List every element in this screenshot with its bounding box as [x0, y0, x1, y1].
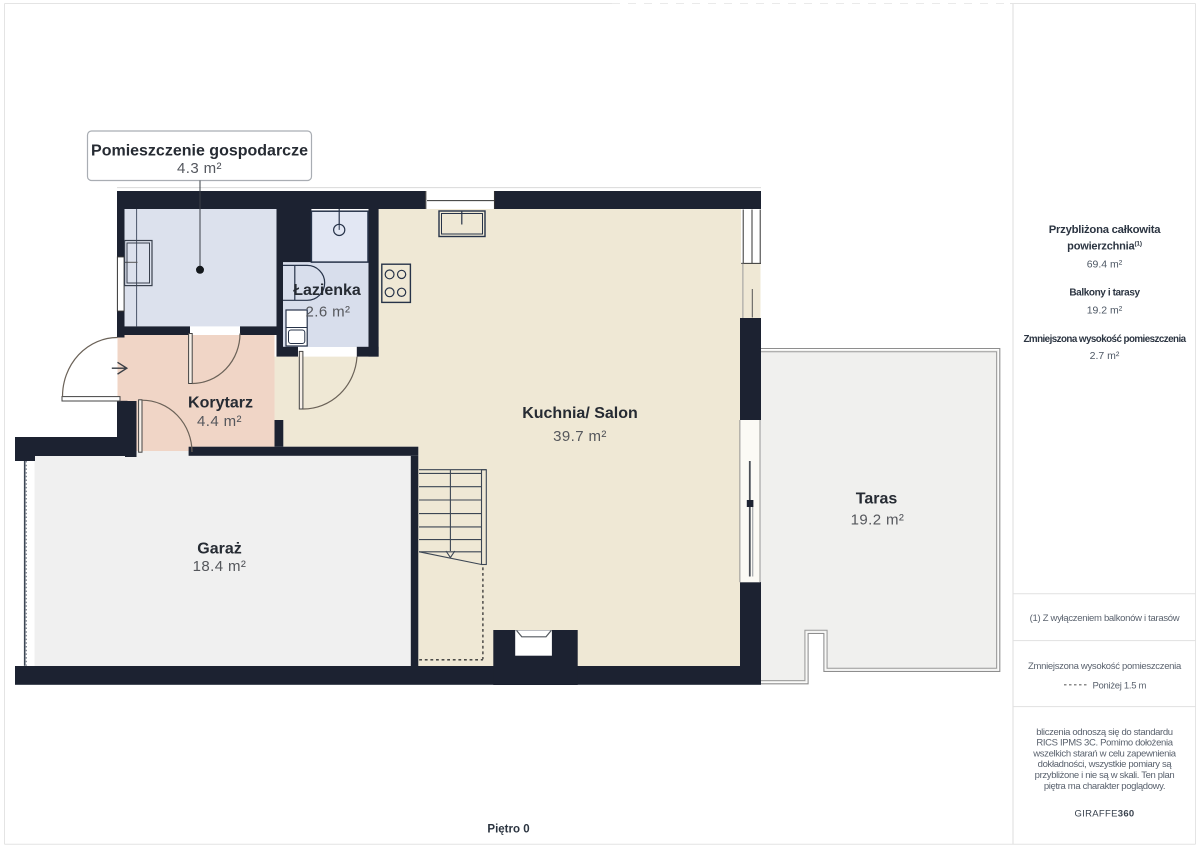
svg-text:39.7 m²: 39.7 m²: [553, 428, 607, 445]
svg-text:przybliżone i nie są w skali.: przybliżone i nie są w skali. Ten plan: [1035, 770, 1175, 781]
svg-text:4.3 m²: 4.3 m²: [177, 160, 222, 177]
svg-text:RICS IPMS 3C. Pomimo dołożenia: RICS IPMS 3C. Pomimo dołożenia: [1036, 738, 1173, 749]
svg-text:bliczenia odnoszą się do stand: bliczenia odnoszą się do standardu: [1036, 727, 1173, 738]
svg-text:Przybliżona całkowita: Przybliżona całkowita: [1049, 224, 1161, 236]
svg-text:Poniżej 1.5 m: Poniżej 1.5 m: [1093, 680, 1147, 691]
svg-text:piętra ma charakter poglądowy.: piętra ma charakter poglądowy.: [1044, 781, 1165, 792]
svg-text:Taras: Taras: [856, 490, 898, 507]
svg-text:Balkony i tarasy: Balkony i tarasy: [1069, 288, 1140, 299]
svg-text:2.6 m²: 2.6 m²: [306, 303, 351, 320]
svg-text:Piętro 0: Piętro 0: [487, 824, 529, 836]
svg-text:Pomieszczenie gospodarcze: Pomieszczenie gospodarcze: [91, 142, 308, 159]
svg-text:19.2 m²: 19.2 m²: [851, 511, 905, 528]
svg-text:GIRAFFE360: GIRAFFE360: [1074, 809, 1134, 820]
svg-text:Kuchnia/ Salon: Kuchnia/ Salon: [522, 405, 638, 422]
svg-text:wszelkich starań w celu zapewn: wszelkich starań w celu zapewnienia: [1032, 748, 1177, 759]
svg-text:4.4 m²: 4.4 m²: [197, 413, 242, 430]
svg-text:(1) Z wyłączeniem balkonów i t: (1) Z wyłączeniem balkonów i tarasów: [1030, 613, 1180, 624]
svg-text:2.7 m²: 2.7 m²: [1090, 350, 1120, 362]
svg-text:69.4 m²: 69.4 m²: [1087, 259, 1123, 271]
svg-text:Zmniejszona wysokość pomieszcz: Zmniejszona wysokość pomieszczenia: [1023, 334, 1186, 345]
svg-text:dokładności, wszystkie pomiary: dokładności, wszystkie pomiary są: [1038, 759, 1173, 770]
svg-text:Korytarz: Korytarz: [188, 394, 253, 411]
svg-text:Garaż: Garaż: [197, 540, 241, 557]
svg-text:powierzchnia(1): powierzchnia(1): [1067, 240, 1142, 252]
svg-text:18.4 m²: 18.4 m²: [193, 558, 247, 575]
svg-text:Zmniejszona wysokość pomieszcz: Zmniejszona wysokość pomieszczenia: [1028, 661, 1182, 672]
svg-text:Łazienka: Łazienka: [293, 282, 361, 299]
svg-text:19.2 m²: 19.2 m²: [1087, 305, 1123, 317]
